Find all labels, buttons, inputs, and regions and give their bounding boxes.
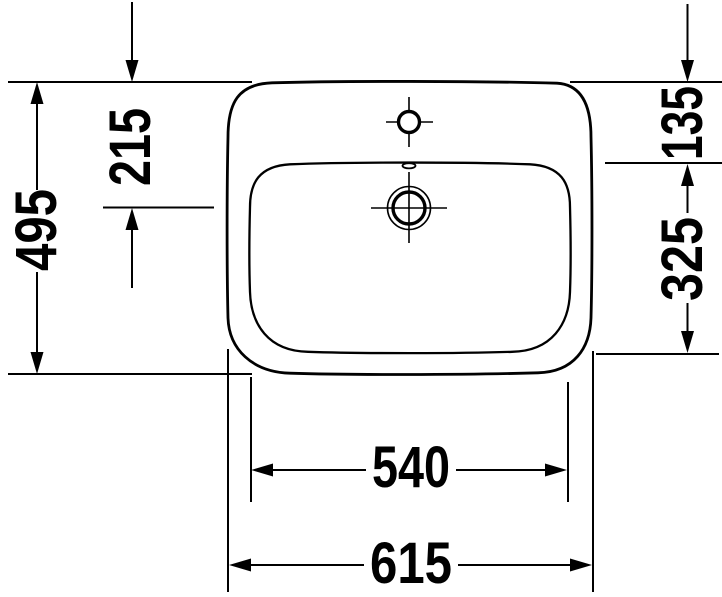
arrow-down-icon bbox=[31, 352, 44, 374]
drain-crosshair-icon bbox=[371, 172, 447, 243]
dim-label-215: 215 bbox=[98, 108, 163, 186]
arrow-right-icon bbox=[545, 464, 567, 477]
arrow-down-icon bbox=[681, 60, 694, 82]
dim-label-135: 135 bbox=[650, 86, 715, 160]
dim-overall-width: 615 bbox=[229, 531, 592, 596]
overflow-slot bbox=[403, 163, 416, 168]
dim-label-495: 495 bbox=[4, 189, 69, 271]
arrow-down-icon bbox=[681, 331, 694, 353]
dim-bowl-width: 540 bbox=[251, 435, 567, 500]
dim-overall-depth: 495 bbox=[4, 82, 69, 374]
dim-label-615: 615 bbox=[370, 531, 452, 596]
dim-label-325: 325 bbox=[650, 217, 715, 301]
drain-group bbox=[371, 172, 447, 243]
faucet-hole bbox=[399, 112, 420, 133]
arrow-left-icon bbox=[229, 559, 251, 572]
arrow-right-icon bbox=[570, 559, 592, 572]
arrow-down-icon bbox=[126, 60, 139, 82]
dim-drain-offset: 215 bbox=[98, 2, 163, 288]
arrow-up-icon bbox=[681, 164, 694, 186]
technical-drawing-canvas: 495 215 135 325 540 bbox=[0, 0, 722, 597]
arrow-left-icon bbox=[251, 464, 273, 477]
dim-label-540: 540 bbox=[372, 435, 450, 500]
faucet-hole-group bbox=[386, 97, 433, 147]
dim-right-chain: 135 325 bbox=[650, 4, 715, 353]
arrow-up-icon bbox=[31, 82, 44, 104]
washbasin-dimension-drawing: 495 215 135 325 540 bbox=[0, 0, 722, 597]
arrow-up-icon bbox=[126, 208, 139, 230]
